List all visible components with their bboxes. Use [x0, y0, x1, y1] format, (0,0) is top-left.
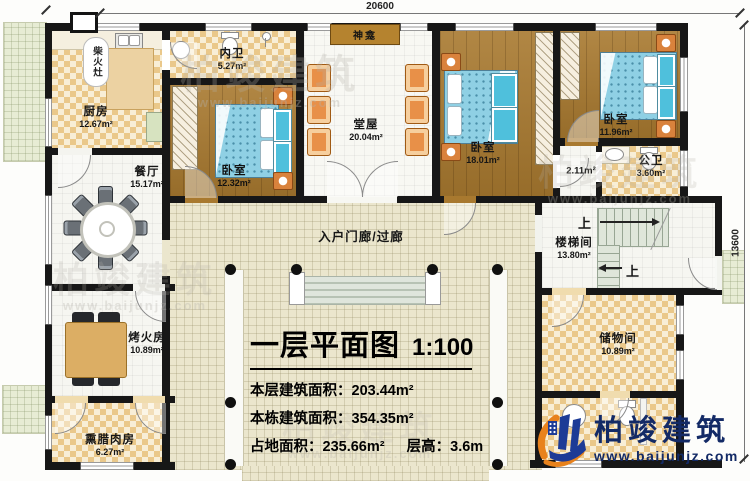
- kitchen-sink-basin: [118, 35, 129, 46]
- bed-cushion: [274, 110, 291, 142]
- column: [427, 264, 438, 275]
- stair-arrow-upper-head: [652, 218, 660, 226]
- label-dining: 餐厅15.17m²: [130, 166, 164, 190]
- story-height-label: 层高：: [407, 439, 451, 455]
- stair-arrow-upper: [600, 221, 652, 223]
- column: [492, 397, 503, 408]
- floor-area-value: 203.44m²: [352, 383, 414, 399]
- armchair: [307, 64, 331, 92]
- shrine-cabinet: 神龛: [330, 24, 400, 45]
- floor-area-label: 本层建筑面积：: [250, 383, 352, 399]
- label-vestibule: 2.11m²: [566, 167, 596, 178]
- bed-cushion: [658, 55, 675, 87]
- shrine-label: 神龛: [353, 27, 377, 42]
- patio-northwest: [3, 22, 47, 162]
- bed-cushion: [658, 87, 675, 119]
- pillow: [447, 106, 462, 136]
- nightstand: [273, 87, 293, 105]
- wood-stove-label: 柴火灶: [89, 46, 103, 78]
- pillow: [260, 108, 275, 138]
- pillow: [260, 140, 275, 170]
- window: [680, 57, 688, 112]
- wardrobe: [535, 32, 555, 165]
- label-kitchen: 厨房12.67m²: [79, 106, 113, 130]
- label-bedroom-mid: 卧室18.01m²: [466, 142, 500, 166]
- armchair: [405, 128, 429, 156]
- walkway-west: [224, 270, 244, 466]
- wall-segment: [432, 31, 440, 196]
- armchair: [307, 96, 331, 124]
- window: [80, 462, 134, 470]
- wall-segment: [296, 31, 304, 196]
- window: [45, 195, 52, 265]
- window: [45, 98, 52, 147]
- wall-segment: [162, 78, 304, 85]
- door-gap: [162, 240, 170, 276]
- column: [492, 459, 503, 470]
- sink: [605, 148, 624, 161]
- title-underline: [250, 368, 472, 370]
- nightstand: [656, 120, 676, 138]
- floor-plan: 柴火灶: [0, 0, 750, 481]
- label-hall: 堂屋20.04m²: [349, 119, 383, 143]
- label-storage: 储物间10.89m²: [599, 333, 637, 357]
- window: [455, 23, 514, 31]
- column: [291, 264, 302, 275]
- bed-cushion: [492, 74, 517, 108]
- window: [595, 23, 657, 31]
- masonry-stove: [106, 48, 154, 110]
- door-gap: [553, 155, 560, 188]
- wardrobe: [172, 86, 198, 170]
- window: [45, 285, 52, 325]
- company-url: www.baijunjz.com: [594, 448, 748, 464]
- label-bedroom-ne: 卧室11.96m²: [599, 114, 632, 138]
- label-bacon-room: 熏腊肉房6.27m²: [85, 434, 135, 458]
- company-name: 柏竣建筑: [594, 416, 748, 448]
- dimension-height: 13600: [731, 229, 742, 257]
- chimney: [70, 12, 98, 33]
- dimension-width: 20600: [366, 1, 394, 12]
- pillow: [643, 56, 658, 84]
- building-area-label: 本栋建筑面积：: [250, 411, 352, 427]
- nightstand: [441, 53, 461, 71]
- label-bedroom-sw: 卧室12.32m²: [217, 165, 251, 189]
- dining-chair: [64, 221, 82, 236]
- fire-table: [65, 322, 127, 378]
- walkway-east: [489, 270, 508, 466]
- dimension-line-top: [100, 13, 740, 14]
- label-inner-bath: 内卫5.27m²: [218, 48, 247, 72]
- armchair: [307, 128, 331, 156]
- nightstand: [273, 172, 293, 190]
- door-gap: [133, 396, 165, 403]
- shower-hose: [265, 38, 266, 47]
- window: [205, 23, 252, 31]
- door-gap: [600, 391, 630, 398]
- wood-stove-label-capsule: 柴火灶: [83, 37, 109, 87]
- patio-east: [722, 250, 745, 304]
- label-fire-room: 烤火房10.89m²: [128, 332, 166, 356]
- dimension-tick: [41, 5, 51, 15]
- window: [95, 23, 140, 31]
- armchair: [405, 96, 429, 124]
- shower-head: [262, 32, 271, 41]
- footprint-value: 235.66m²: [323, 439, 385, 455]
- column-base: [289, 272, 305, 305]
- bed-cushion: [492, 108, 517, 142]
- door-gap: [55, 396, 88, 403]
- door-gap: [58, 148, 92, 155]
- stair-arrow-lower: [606, 267, 622, 269]
- column: [492, 264, 503, 275]
- door-gap: [327, 196, 397, 203]
- plan-title: 一层平面图: [250, 322, 400, 364]
- column: [225, 459, 236, 470]
- kitchen-sink-basin2: [129, 35, 140, 46]
- bed-cushion: [274, 142, 291, 174]
- pillow: [643, 86, 658, 114]
- courtyard-paving-south: [242, 466, 489, 481]
- column: [225, 264, 236, 275]
- window: [307, 23, 332, 31]
- building-area-value: 354.35m²: [352, 411, 414, 427]
- door-gap: [535, 215, 542, 252]
- window: [680, 150, 688, 187]
- stair-flight-upper: [597, 208, 669, 247]
- column-base: [425, 272, 441, 305]
- window: [400, 23, 428, 31]
- stair-up-label: 上: [578, 213, 591, 232]
- dimension-line-right: [744, 25, 745, 462]
- dining-table-hub: [99, 221, 115, 237]
- label-public-bath: 公卫3.60m²: [637, 155, 666, 179]
- label-stairwell: 楼梯间13.80m²: [555, 237, 593, 261]
- door-gap: [552, 288, 586, 295]
- window: [676, 305, 684, 335]
- column: [225, 397, 236, 408]
- stair-arrow-lower-head: [598, 264, 606, 272]
- door-gap: [133, 284, 165, 291]
- armchair: [405, 64, 429, 92]
- entry-steps: [303, 276, 427, 305]
- plan-scale: 1:100: [412, 334, 473, 362]
- company-logo: 柏竣建筑 www.baijunjz.com: [534, 404, 748, 476]
- nightstand: [441, 143, 461, 161]
- label-porch: 入户门廊/过廊: [318, 230, 403, 244]
- pillow: [447, 74, 462, 104]
- door-gap: [162, 40, 170, 70]
- patio-west: [2, 385, 47, 434]
- wall-segment: [535, 196, 722, 203]
- wardrobe: [560, 32, 580, 100]
- stair-up-label: 上: [626, 261, 639, 280]
- door-gap: [444, 196, 476, 203]
- company-logo-icon: [534, 408, 588, 473]
- story-height-value: 3.6m: [450, 439, 483, 455]
- window: [45, 415, 52, 450]
- nightstand: [656, 34, 676, 52]
- title-block: 一层平面图 1:100 本层建筑面积：203.44m² 本栋建筑面积：354.3…: [250, 322, 486, 456]
- window: [676, 350, 684, 380]
- door-gap: [596, 152, 602, 182]
- footprint-label: 占地面积：: [250, 439, 323, 455]
